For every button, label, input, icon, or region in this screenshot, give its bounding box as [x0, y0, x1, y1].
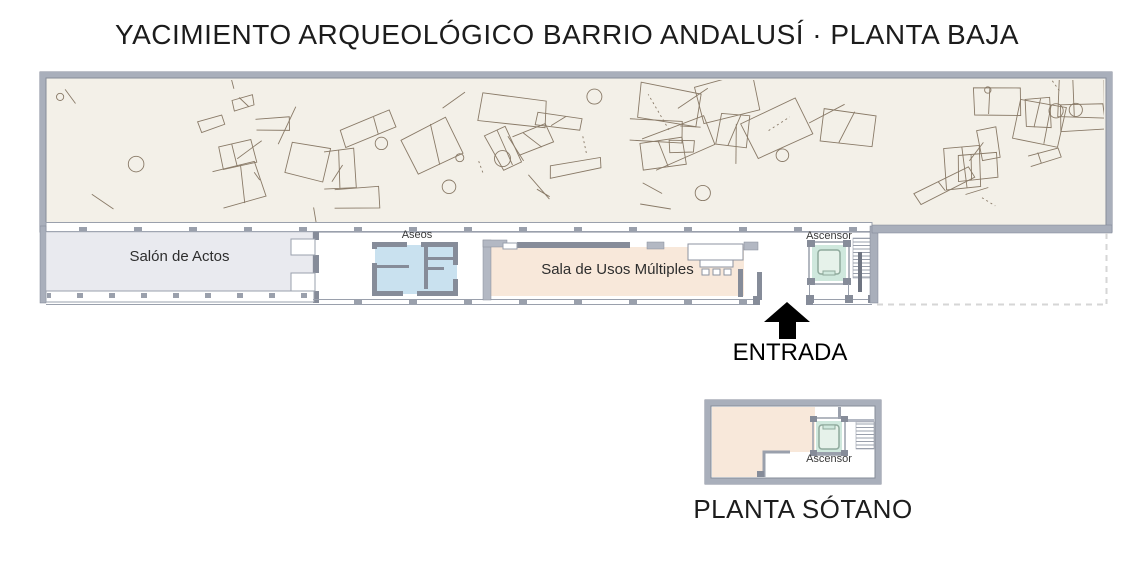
archaeological-zone-floor [40, 72, 1112, 232]
entrance-arrow-icon [764, 302, 810, 339]
sala-top-wall [517, 242, 630, 248]
stair-handrail [858, 252, 862, 292]
glazed-facade-salon [46, 291, 314, 302]
room-label-ascensor-basement: Ascensor [793, 453, 865, 465]
elevator-door-icon [823, 271, 835, 275]
elevator-shaft-ground [806, 240, 853, 303]
salon-niche [291, 273, 315, 291]
aseos-floor [375, 245, 457, 294]
elevator-door-icon [823, 425, 835, 429]
door-leaf [757, 272, 762, 300]
room-label-salon-de-actos: Salón de Actos [46, 248, 313, 265]
aseos-room [372, 242, 458, 296]
archaeological-zone [40, 67, 1112, 247]
entrance-label: ENTRADA [690, 339, 890, 367]
glazed-facade-top [46, 223, 872, 232]
floor-plan-page: YACIMIENTO ARQUEOLÓGICO BARRIO ANDALUSÍ … [0, 0, 1134, 567]
basement-title: PLANTA SÓTANO [653, 494, 953, 525]
room-label-sala-usos-multiples: Sala de Usos Múltiples [491, 261, 744, 278]
floor-plan-graphic [0, 0, 1134, 567]
basement-plan [705, 400, 881, 484]
room-label-ascensor-ground: Ascensor [795, 230, 863, 242]
staircase-basement-icon [856, 422, 874, 449]
room-label-aseos: Aseos [375, 229, 459, 241]
dashed-boundary [877, 233, 1107, 305]
elevator-car-icon [818, 250, 840, 274]
unexcavated-dashed-outline [872, 225, 1112, 305]
